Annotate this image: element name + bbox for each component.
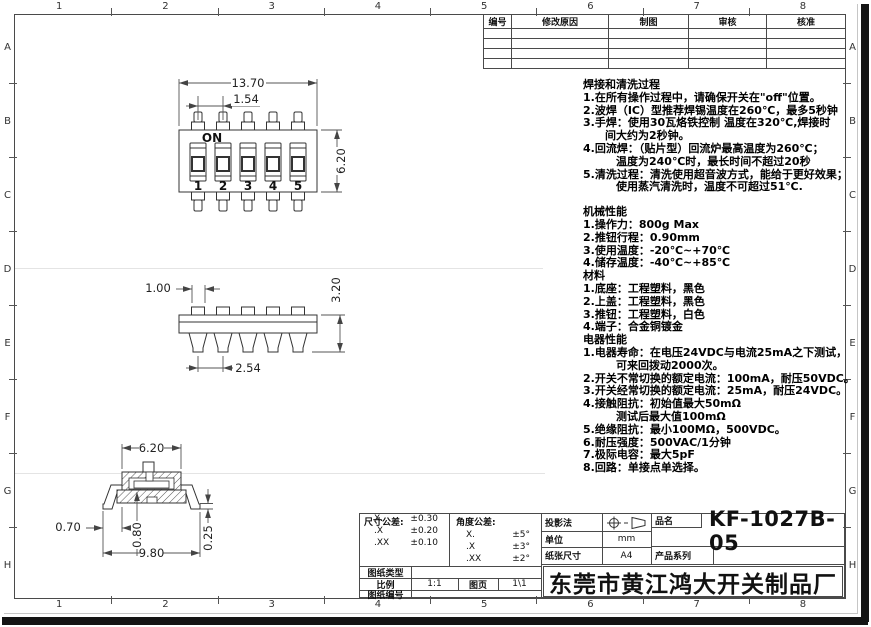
front-view-drawing: 1.00 3.20 2.54 [145, 277, 345, 375]
paper-size-value: A4 [602, 547, 651, 564]
position-label-2: 2 [219, 179, 227, 193]
note-line: 1.在所有操作过程中，请确保开关在"off"位置。 [583, 92, 851, 105]
dim-body-width: 13.70 [232, 76, 265, 90]
dim-height: 3.20 [329, 277, 343, 303]
on-label: ON [202, 131, 222, 145]
tolerance-value: ±0.30 [410, 514, 438, 526]
angle-tolerance-title: 角度公差: [452, 515, 540, 528]
top-view-drawing: ON 1 2 3 4 5 13.70 1.54 6.20 [179, 76, 348, 211]
paper-size-label: 纸张尺寸 [541, 547, 602, 564]
tolerance-value: ±0.20 [410, 526, 438, 538]
note-line: 使用蒸汽清洗时，温度不可超过51℃. [583, 181, 851, 194]
dim-inner-height: 0.80 [130, 522, 144, 548]
tolerance-key: .X [374, 526, 383, 538]
position-label-4: 4 [269, 179, 277, 193]
unit-value: mm [602, 531, 651, 547]
sheet-value: 1\1 [498, 578, 541, 590]
dim-body-depth: 6.20 [334, 148, 348, 174]
scale-value: 1:1 [411, 578, 458, 590]
mechanical-section: 机械性能 1.操作力：800g Max2.推钮行程：0.90mm3.使用温度：-… [583, 206, 851, 270]
dim-foot-offset: 0.70 [55, 520, 81, 534]
note-line: 5.绝缘阻抗：最小100MΩ，500VDC。 [583, 424, 851, 437]
note-line: 4.接触阻抗：初始值最大50mΩ [583, 398, 851, 411]
tolerance-value: ±2° [512, 554, 530, 566]
dim-terminal-pitch: 2.54 [235, 361, 261, 375]
product-name-label: 品名 [651, 514, 701, 527]
tolerance-key: .XX [374, 538, 389, 550]
product-name: KF-1027B-05 [705, 516, 845, 545]
note-line: 1.操作力：800g Max [583, 219, 851, 232]
tolerance-key: X. [374, 514, 383, 526]
projection-symbol [602, 514, 651, 531]
note-line: 可来回拨动2000次。 [583, 360, 851, 373]
electrical-section: 电器性能 1.电器寿命：在电压24VDC与电流25mA之下测试， 可来回拨动20… [583, 334, 851, 475]
note-line: 1.底座：工程塑料，黑色 [583, 283, 851, 296]
note-line: 2.推钮行程：0.90mm [583, 232, 851, 245]
dim-foot-thickness: 0.25 [201, 525, 215, 551]
note-line: 4.回流焊：（贴片型）回流炉最高温度为260℃； [583, 143, 851, 156]
position-label-5: 5 [294, 179, 302, 193]
note-line: 1.电器寿命：在电压24VDC与电流25mA之下测试， [583, 347, 851, 360]
tolerance-value: ±0.10 [410, 538, 438, 550]
note-line: 测试后最大值100mΩ [583, 411, 851, 424]
note-line: 4.储存温度：-40℃~+85℃ [583, 257, 851, 270]
section-title: 焊接和清洗过程 [583, 79, 851, 92]
sheet-label: 图页 [458, 578, 498, 590]
third-angle-projection-icon [605, 516, 649, 530]
dim-pin-pitch: 1.54 [233, 92, 259, 106]
tolerance-value: ±3° [512, 542, 530, 554]
tolerance-key: .X [466, 542, 475, 554]
dim-cover-width: 6.20 [139, 441, 165, 455]
dim-total-width: 9.80 [139, 546, 165, 560]
drawing-page: 12345678 12345678 ABCDEFGH ABCDEFGH 编号修改… [0, 0, 871, 627]
tolerance-key: X. [466, 530, 475, 542]
tolerance-key: .XX [466, 554, 481, 566]
position-label-3: 3 [244, 179, 252, 193]
soldering-section: 焊接和清洗过程 1.在所有操作过程中，请确保开关在"off"位置。2.波焊（IC… [583, 79, 851, 194]
angle-tolerance-rows: X. ±5° .X ±3° .XX ±2° [452, 530, 540, 566]
notes-block: 焊接和清洗过程 1.在所有操作过程中，请确保开关在"off"位置。2.波焊（IC… [583, 79, 851, 475]
note-line: 2.上盖：工程塑料，黑色 [583, 296, 851, 309]
projection-label: 投影法 [541, 514, 602, 531]
tolerance-value: ±5° [512, 530, 530, 542]
section-view-drawing: 6.20 0.70 0.80 0.25 9.80 [55, 441, 215, 560]
company-name: 东莞市黄江鸿大开关制品厂 [543, 566, 843, 597]
product-series-label: 产品系列 [651, 547, 713, 564]
dim-tab-width: 1.00 [145, 281, 171, 295]
position-label-1: 1 [194, 179, 202, 193]
unit-label: 单位 [541, 531, 602, 547]
note-line: 温度为240℃时，最长时间不超过20秒 [583, 156, 851, 169]
material-section: 材料 1.底座：工程塑料，黑色2.上盖：工程塑料，黑色3.推钮：工程塑料，白色4… [583, 270, 851, 334]
title-block: 尺寸公差: X. ±0.30 .X ±0.20 .XX ±0.10 角度公差: [359, 513, 845, 598]
drawing-type-label: 图纸类型 [360, 566, 411, 578]
note-line: 8.回路：单接点单选择。 [583, 462, 851, 475]
drawing-number-label: 图纸编号 [360, 590, 411, 599]
